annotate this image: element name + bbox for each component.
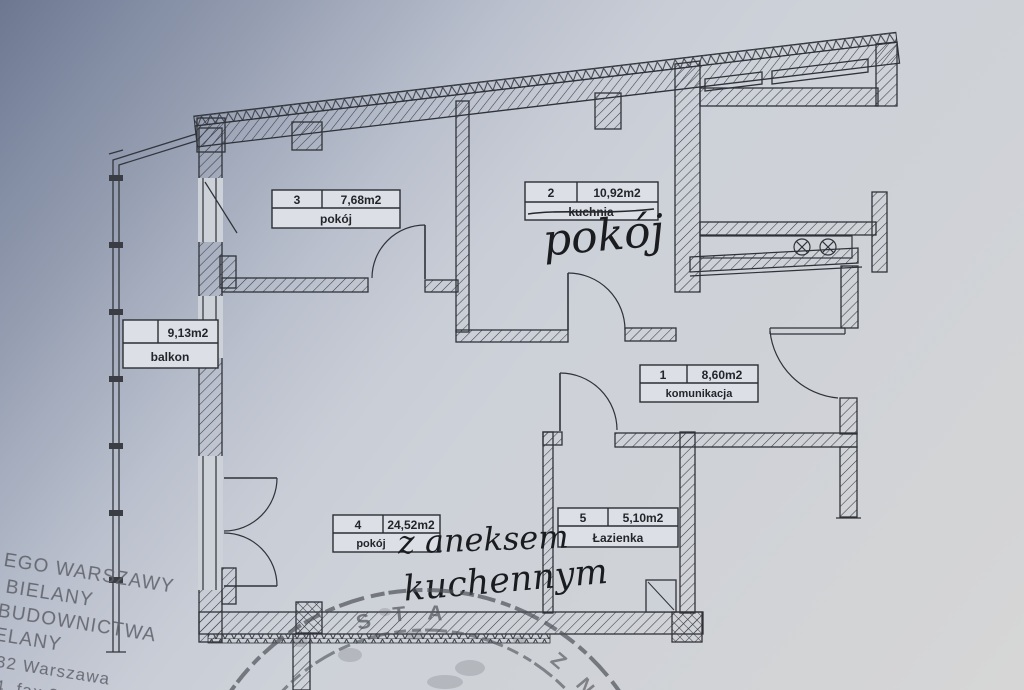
handwritten-room4-line1: z aneksem	[396, 518, 569, 562]
room3-wall-stub	[425, 280, 458, 292]
counter-back-wall	[700, 222, 876, 235]
room-number: 2	[548, 186, 555, 200]
door-arc	[224, 478, 277, 531]
railing-posts	[109, 175, 123, 583]
room-name: pokój	[320, 212, 352, 226]
room-area: 9,13m2	[168, 326, 209, 340]
handwritten-room4-line2: kuchennym	[402, 552, 609, 610]
room-number: 5	[580, 511, 587, 525]
right-wall-lower	[840, 447, 857, 517]
room-number: 3	[294, 193, 301, 207]
room-number: 4	[355, 518, 362, 532]
floor-plan-drawing: 3 7,68m2 pokój 2 10,92m2 kuchnia 9,13m2 …	[0, 0, 1024, 690]
handwritten-annotations: pokój z aneksem kuchennym	[396, 205, 666, 609]
room2-bottom-wall	[456, 330, 568, 342]
wall-pier	[292, 122, 322, 150]
room-area: 5,10m2	[623, 511, 664, 525]
entrance-door	[770, 328, 845, 398]
room3-door	[372, 225, 425, 279]
room-area: 7,68m2	[341, 193, 382, 207]
room2-door	[568, 273, 625, 330]
topright-band	[700, 88, 878, 106]
bath-right-wall	[680, 432, 695, 613]
entry-wall-stub	[840, 398, 857, 434]
hall-label: 1 8,60m2 komunikacja	[640, 365, 758, 402]
bathroom-door	[560, 373, 617, 431]
bottom-exterior-wall	[199, 612, 703, 634]
door-arc	[372, 225, 425, 278]
bath-wall-stub	[543, 432, 562, 445]
balcony-label: 9,13m2 balkon	[123, 320, 218, 368]
room-name: balkon	[151, 350, 190, 364]
room-number: 1	[660, 368, 667, 382]
room-area: 10,92m2	[593, 186, 641, 200]
door-arc	[770, 331, 838, 398]
hall-bottom-wall	[615, 433, 857, 447]
room2-left-wall	[456, 101, 469, 332]
room2-bottom-wall	[625, 328, 676, 341]
scanned-floor-plan-photo: 3 7,68m2 pokój 2 10,92m2 kuchnia 9,13m2 …	[0, 0, 1024, 690]
door-arc	[568, 273, 625, 330]
wall-pier	[595, 93, 621, 129]
room3-label: 3 7,68m2 pokój	[272, 190, 400, 228]
room-name: komunikacja	[666, 388, 734, 400]
room-name: Łazienka	[593, 531, 644, 545]
room3-bottom-wall	[222, 278, 368, 292]
topright-corner-wall	[876, 42, 897, 106]
door-arc	[560, 373, 617, 430]
room-area: 8,60m2	[702, 368, 743, 382]
handwritten-room2: pokój	[541, 205, 666, 266]
bathroom-label: 5 5,10m2 Łazienka	[558, 508, 678, 547]
office-stamp: EGO WARSZAWY BIELANY BUDOWNICTWA ELANY 3…	[0, 550, 182, 690]
room-name: pokój	[356, 538, 385, 550]
entry-wall-pier	[841, 266, 858, 328]
